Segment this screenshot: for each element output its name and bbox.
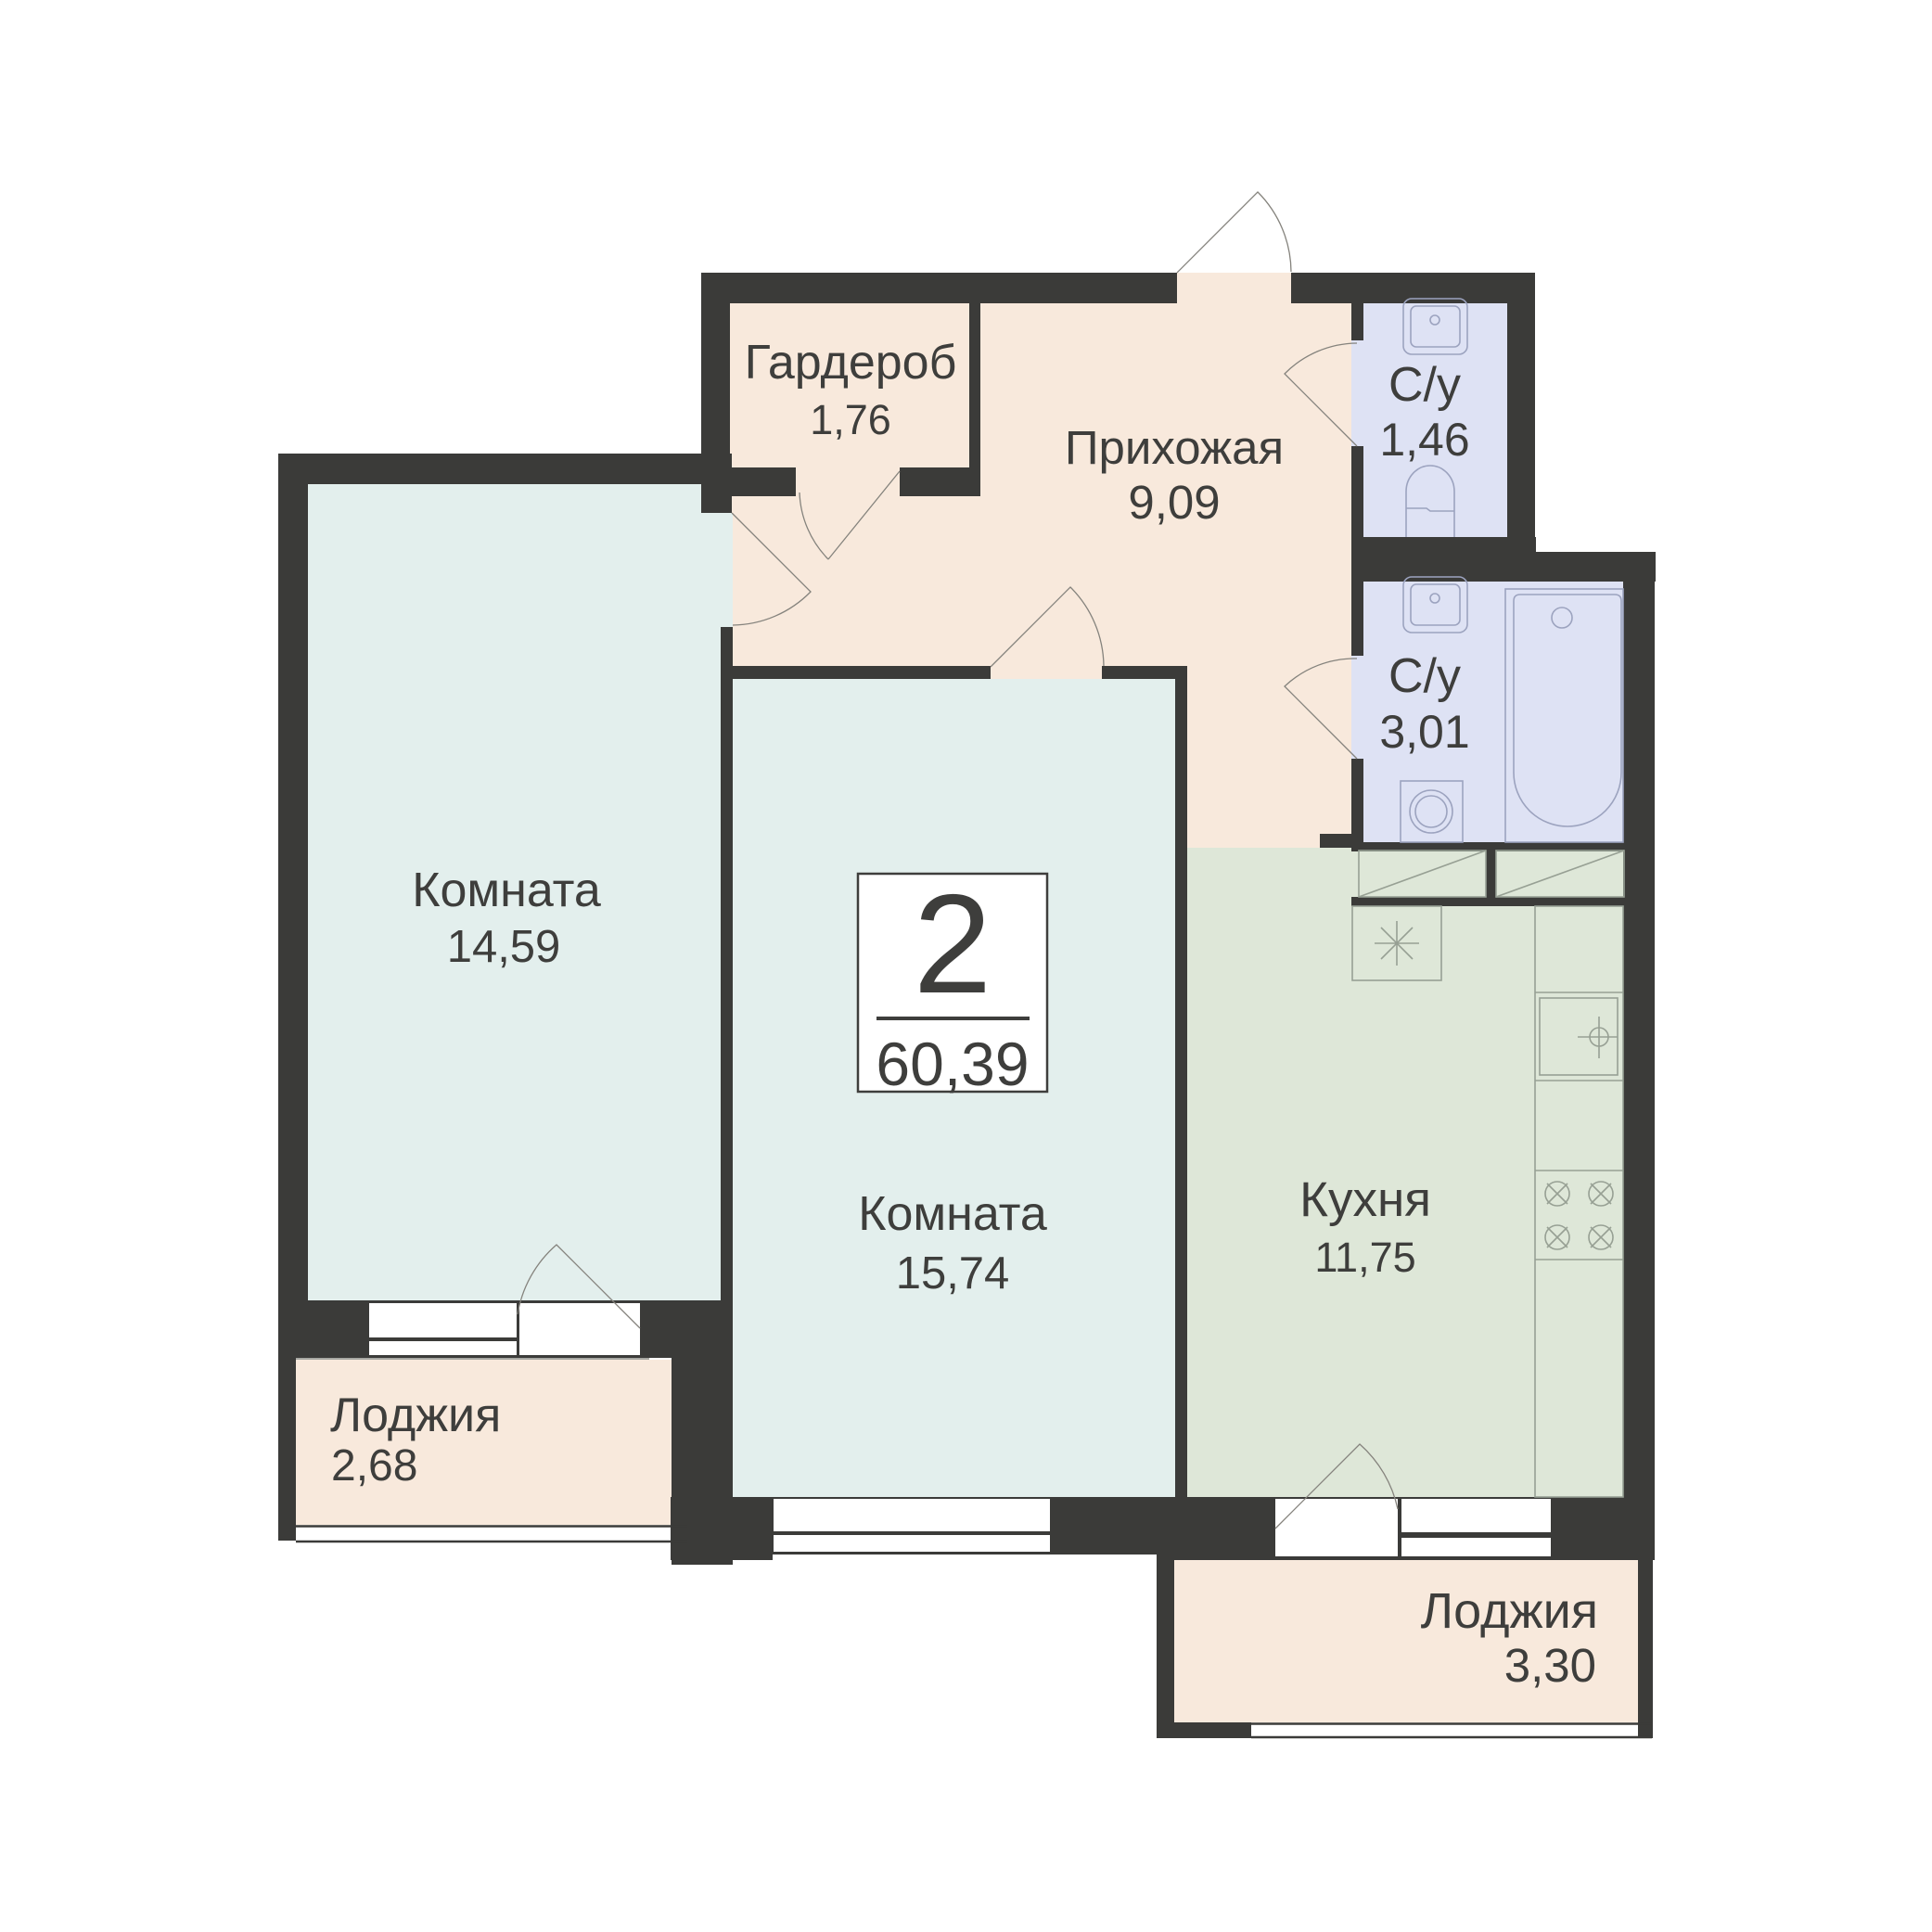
svg-text:С/у: С/у: [1388, 649, 1461, 703]
svg-text:Кухня: Кухня: [1299, 1172, 1431, 1227]
svg-text:11,75: 11,75: [1314, 1234, 1415, 1281]
svg-text:Прихожая: Прихожая: [1065, 421, 1284, 474]
svg-text:Гардероб: Гардероб: [745, 336, 957, 390]
svg-text:1,76: 1,76: [810, 396, 891, 443]
svg-text:2: 2: [914, 865, 992, 1023]
svg-text:14,59: 14,59: [447, 922, 561, 972]
svg-text:Лоджия: Лоджия: [1421, 1583, 1598, 1639]
svg-text:Комната: Комната: [412, 864, 601, 917]
svg-text:2,68: 2,68: [331, 1441, 417, 1491]
svg-text:С/у: С/у: [1388, 358, 1461, 412]
svg-text:3,01: 3,01: [1379, 706, 1469, 758]
svg-text:1,46: 1,46: [1379, 414, 1469, 466]
svg-text:3,30: 3,30: [1504, 1639, 1596, 1692]
svg-text:15,74: 15,74: [896, 1248, 1010, 1299]
svg-text:60,39: 60,39: [876, 1030, 1029, 1098]
svg-text:Лоджия: Лоджия: [330, 1388, 501, 1442]
svg-text:Комната: Комната: [858, 1187, 1047, 1241]
svg-text:9,09: 9,09: [1128, 476, 1220, 529]
